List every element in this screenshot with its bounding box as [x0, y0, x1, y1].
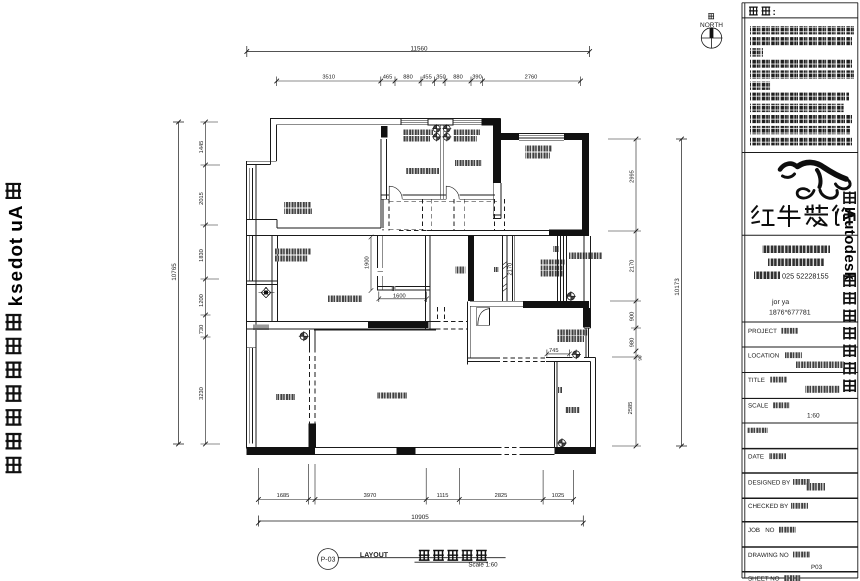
svg-text:3230: 3230 — [199, 387, 205, 400]
svg-text:1025: 1025 — [552, 493, 565, 499]
svg-text:730: 730 — [199, 325, 205, 335]
svg-text:k: k — [6, 295, 27, 306]
svg-text:LAYOUT: LAYOUT — [360, 552, 389, 559]
svg-text:10173: 10173 — [674, 278, 681, 296]
svg-text:s: s — [6, 283, 27, 294]
svg-text:1:60: 1:60 — [807, 413, 820, 420]
svg-text:jor ya: jor ya — [771, 298, 789, 306]
svg-text:P03: P03 — [811, 564, 823, 571]
svg-text:2825: 2825 — [495, 493, 508, 499]
svg-text:2015: 2015 — [199, 192, 205, 205]
svg-text:880: 880 — [403, 75, 413, 81]
svg-text:900: 900 — [630, 312, 636, 322]
svg-text:10905: 10905 — [411, 514, 429, 521]
svg-text:2170: 2170 — [630, 260, 636, 273]
svg-text:2585: 2585 — [628, 402, 634, 415]
svg-text:1830: 1830 — [199, 249, 205, 262]
svg-text:980: 980 — [630, 338, 636, 348]
svg-text:745: 745 — [549, 348, 559, 354]
svg-text:SCALE: SCALE — [748, 403, 768, 410]
svg-text:90: 90 — [638, 355, 643, 361]
svg-text:DRAWING NO: DRAWING NO — [748, 552, 789, 559]
svg-text::: : — [773, 7, 776, 18]
svg-text:CHECKED BY: CHECKED BY — [748, 503, 788, 510]
svg-text:TITLE: TITLE — [748, 377, 765, 384]
svg-text:JOB NO: JOB NO — [748, 527, 775, 534]
svg-text:d: d — [6, 257, 27, 269]
svg-text:LOCATION: LOCATION — [748, 353, 779, 360]
svg-text:025 52228155: 025 52228155 — [782, 272, 829, 281]
svg-text:1600: 1600 — [393, 293, 406, 299]
svg-text:1900: 1900 — [365, 256, 371, 269]
svg-text:10765: 10765 — [171, 263, 178, 281]
svg-text:DESIGNED BY: DESIGNED BY — [748, 479, 790, 486]
svg-text:880: 880 — [453, 75, 463, 81]
svg-text:DATE: DATE — [748, 454, 764, 461]
svg-text:465: 465 — [383, 75, 393, 81]
svg-text:Scale 1:60: Scale 1:60 — [468, 562, 498, 569]
svg-text:390: 390 — [472, 75, 482, 81]
svg-text:SHEET NO: SHEET NO — [748, 576, 780, 581]
svg-text:e: e — [6, 271, 27, 282]
svg-text:1445: 1445 — [199, 141, 205, 154]
svg-text:3970: 3970 — [364, 493, 377, 499]
svg-text:o: o — [6, 245, 27, 257]
svg-text:3510: 3510 — [322, 75, 335, 81]
svg-text:A: A — [6, 205, 27, 219]
svg-text:NORTH: NORTH — [700, 22, 723, 29]
svg-text:u: u — [6, 220, 27, 232]
svg-text:PROJECT: PROJECT — [748, 328, 777, 335]
svg-text:P-03: P-03 — [321, 557, 336, 564]
svg-text:1200: 1200 — [199, 294, 205, 307]
svg-text:2760: 2760 — [525, 75, 538, 81]
svg-text:2995: 2995 — [630, 170, 636, 183]
svg-text:11560: 11560 — [410, 46, 428, 53]
svg-text:350: 350 — [436, 75, 446, 81]
svg-text:1115: 1115 — [437, 493, 449, 499]
svg-text:455: 455 — [422, 75, 432, 81]
svg-text:t: t — [6, 237, 27, 244]
svg-text:1685: 1685 — [277, 493, 290, 499]
svg-text:1876*677781: 1876*677781 — [769, 310, 811, 317]
